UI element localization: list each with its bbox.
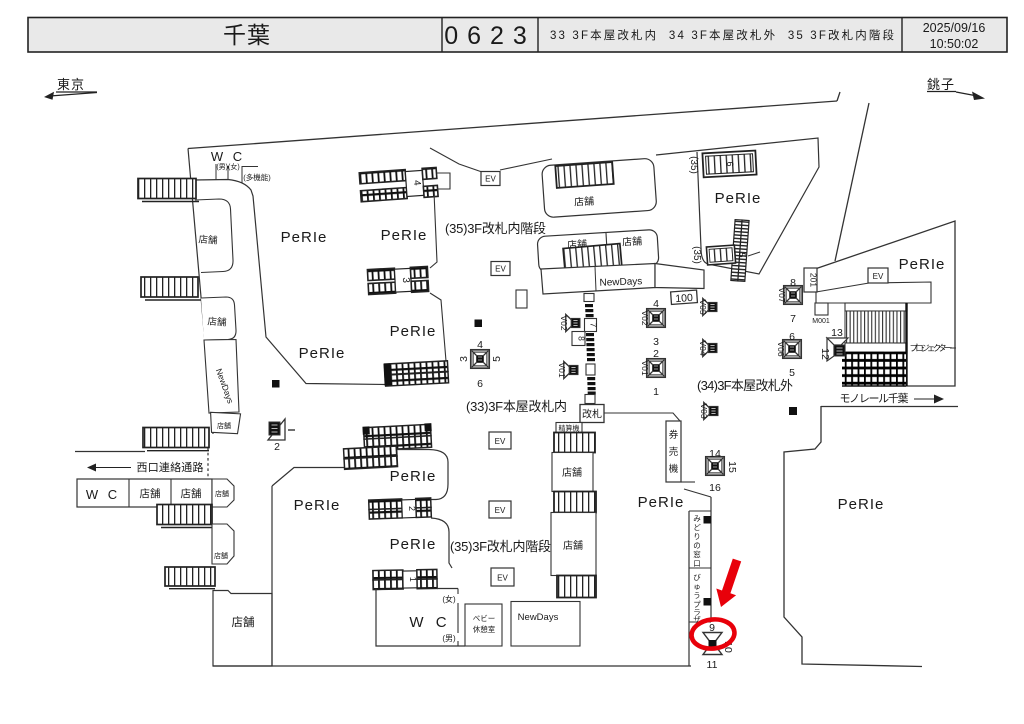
svg-text:100: 100 bbox=[675, 292, 693, 305]
svg-text:改札: 改札 bbox=[582, 408, 602, 421]
svg-text:休憩室: 休憩室 bbox=[473, 624, 496, 634]
svg-text:千葉: 千葉 bbox=[223, 22, 271, 48]
svg-text:(35): (35) bbox=[691, 246, 702, 264]
svg-text:店舗: 店舗 bbox=[215, 489, 229, 498]
svg-text:の: の bbox=[693, 541, 701, 550]
svg-text:5: 5 bbox=[737, 252, 747, 257]
svg-text:銚子: 銚子 bbox=[927, 77, 955, 92]
svg-text:4: 4 bbox=[653, 298, 659, 310]
svg-text:0623: 0623 bbox=[444, 22, 536, 50]
svg-text:8: 8 bbox=[790, 277, 796, 289]
svg-text:(女): (女) bbox=[442, 594, 456, 604]
svg-text:び: び bbox=[693, 573, 701, 582]
svg-text:店舗: 店舗 bbox=[198, 233, 218, 246]
svg-text:口: 口 bbox=[693, 559, 701, 568]
svg-text:(33)3F本屋改札内: (33)3F本屋改札内 bbox=[466, 399, 567, 414]
svg-text:店舗: 店舗 bbox=[563, 539, 583, 552]
svg-text:V02: V02 bbox=[559, 315, 569, 330]
svg-text:プロジェクター: プロジェクター bbox=[910, 343, 953, 353]
svg-text:店舗: 店舗 bbox=[140, 487, 161, 500]
svg-text:店舗: 店舗 bbox=[181, 487, 202, 500]
svg-text:PeRIe: PeRIe bbox=[838, 496, 885, 513]
svg-text:店舗: 店舗 bbox=[207, 315, 227, 328]
svg-text:W C: W C bbox=[86, 487, 120, 502]
svg-text:12: 12 bbox=[819, 348, 831, 360]
svg-text:PeRIe: PeRIe bbox=[299, 345, 346, 362]
svg-text:6: 6 bbox=[477, 378, 483, 390]
svg-text:9: 9 bbox=[709, 622, 715, 634]
svg-text:M001: M001 bbox=[812, 318, 830, 325]
svg-text:13: 13 bbox=[831, 327, 843, 339]
svg-text:窓: 窓 bbox=[693, 549, 701, 559]
svg-text:11: 11 bbox=[707, 659, 718, 671]
svg-text:(男): (男) bbox=[442, 634, 456, 643]
svg-text:10:50:02: 10:50:02 bbox=[930, 37, 979, 51]
svg-text:(35): (35) bbox=[688, 156, 699, 174]
svg-text:NewDays: NewDays bbox=[518, 612, 559, 623]
svg-text:PeRIe: PeRIe bbox=[390, 468, 437, 485]
svg-text:8: 8 bbox=[577, 336, 587, 341]
svg-text:PeRIe: PeRIe bbox=[281, 229, 328, 246]
svg-text:3: 3 bbox=[458, 356, 470, 362]
svg-text:精算機: 精算機 bbox=[559, 424, 580, 433]
svg-text:店舗: 店舗 bbox=[232, 615, 255, 629]
svg-text:券: 券 bbox=[669, 429, 679, 441]
svg-text:7: 7 bbox=[790, 313, 796, 325]
svg-text:み: み bbox=[693, 514, 701, 523]
svg-text:3: 3 bbox=[400, 277, 411, 284]
svg-text:店舗: 店舗 bbox=[214, 551, 228, 560]
svg-text:(35)3F改札内階段: (35)3F改札内階段 bbox=[445, 221, 546, 236]
svg-text:2: 2 bbox=[653, 348, 659, 360]
svg-text:EV: EV bbox=[485, 175, 496, 184]
svg-text:W C: W C bbox=[409, 614, 450, 631]
svg-text:14: 14 bbox=[709, 448, 721, 460]
svg-text:V03: V03 bbox=[699, 403, 709, 418]
svg-text:V06: V06 bbox=[776, 341, 786, 356]
svg-text:16: 16 bbox=[709, 482, 721, 494]
svg-text:店舗: 店舗 bbox=[217, 421, 231, 430]
svg-text:EV: EV bbox=[497, 574, 508, 583]
svg-text:モノレール千葉: モノレール千葉 bbox=[840, 391, 909, 405]
svg-text:V04: V04 bbox=[698, 340, 708, 355]
svg-text:(多機能): (多機能) bbox=[243, 172, 271, 182]
svg-text:7: 7 bbox=[589, 323, 599, 328]
svg-text:EV: EV bbox=[873, 272, 884, 281]
svg-text:V02: V02 bbox=[640, 310, 650, 325]
svg-text:15: 15 bbox=[726, 461, 738, 473]
svg-text:V01: V01 bbox=[557, 362, 567, 377]
svg-text:EV: EV bbox=[495, 437, 506, 446]
svg-text:2: 2 bbox=[274, 441, 280, 453]
svg-text:V07: V07 bbox=[777, 287, 787, 302]
svg-text:V05: V05 bbox=[698, 299, 708, 314]
svg-text:売: 売 bbox=[669, 446, 679, 458]
svg-text:PeRIe: PeRIe bbox=[390, 536, 437, 553]
svg-text:ベビー: ベビー bbox=[473, 614, 496, 623]
svg-text:EV: EV bbox=[495, 506, 506, 515]
svg-text:6: 6 bbox=[725, 161, 735, 166]
svg-text:機: 機 bbox=[669, 463, 679, 475]
svg-text:5: 5 bbox=[491, 356, 503, 362]
svg-text:NewDays: NewDays bbox=[599, 276, 642, 288]
svg-text:3: 3 bbox=[653, 336, 659, 348]
svg-text:西口連絡通路: 西口連絡通路 bbox=[137, 460, 204, 474]
svg-text:店舗: 店舗 bbox=[622, 234, 643, 248]
svg-text:う: う bbox=[693, 591, 701, 600]
svg-text:ど: ど bbox=[693, 523, 701, 532]
svg-text:PeRIe: PeRIe bbox=[638, 494, 685, 511]
svg-text:EV: EV bbox=[495, 265, 506, 274]
svg-text:店舗: 店舗 bbox=[562, 466, 582, 479]
svg-text:(34)3F本屋改札外: (34)3F本屋改札外 bbox=[697, 378, 793, 393]
svg-text:店舗: 店舗 bbox=[574, 194, 595, 208]
svg-text:2025/09/16: 2025/09/16 bbox=[923, 21, 986, 35]
svg-text:1: 1 bbox=[653, 386, 659, 398]
svg-text:PeRIe: PeRIe bbox=[294, 497, 341, 514]
svg-text:5: 5 bbox=[789, 367, 795, 379]
svg-text:V01: V01 bbox=[640, 360, 650, 375]
svg-text:ゅ: ゅ bbox=[693, 582, 701, 591]
svg-text:PeRIe: PeRIe bbox=[381, 227, 428, 244]
svg-text:PeRIe: PeRIe bbox=[390, 323, 437, 340]
svg-text:W C: W C bbox=[211, 149, 245, 164]
svg-text:り: り bbox=[693, 532, 701, 541]
svg-text:PeRIe: PeRIe bbox=[715, 190, 762, 207]
svg-text:4: 4 bbox=[477, 339, 483, 351]
svg-text:6: 6 bbox=[789, 331, 795, 343]
svg-text:201: 201 bbox=[809, 273, 819, 287]
svg-text:PeRIe: PeRIe bbox=[899, 256, 946, 273]
svg-text:東京: 東京 bbox=[57, 77, 85, 92]
svg-text:(35)3F改札内階段: (35)3F改札内階段 bbox=[450, 539, 551, 554]
svg-text:(男)(女): (男)(女) bbox=[216, 162, 239, 171]
